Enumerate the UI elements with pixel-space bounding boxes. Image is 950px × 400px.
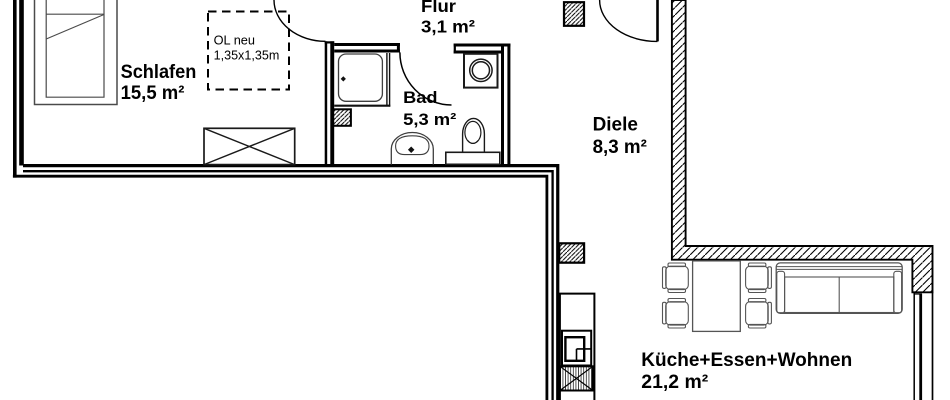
svg-text:Diele: Diele (593, 114, 638, 135)
svg-text:Flur: Flur (421, 0, 456, 16)
svg-text:1,35x1,35m: 1,35x1,35m (214, 48, 280, 62)
svg-text:8,3 m²: 8,3 m² (593, 137, 647, 158)
svg-text:5,3 m²: 5,3 m² (403, 111, 457, 129)
svg-text:21,2 m²: 21,2 m² (641, 372, 708, 393)
svg-text:Küche+Essen+Wohnen: Küche+Essen+Wohnen (641, 350, 852, 371)
svg-text:Bad: Bad (403, 89, 437, 107)
svg-text:Schlafen: Schlafen (121, 62, 197, 83)
svg-text:3,1 m²: 3,1 m² (421, 17, 475, 37)
svg-text:OL neu: OL neu (214, 34, 255, 48)
svg-text:15,5 m²: 15,5 m² (121, 83, 185, 104)
